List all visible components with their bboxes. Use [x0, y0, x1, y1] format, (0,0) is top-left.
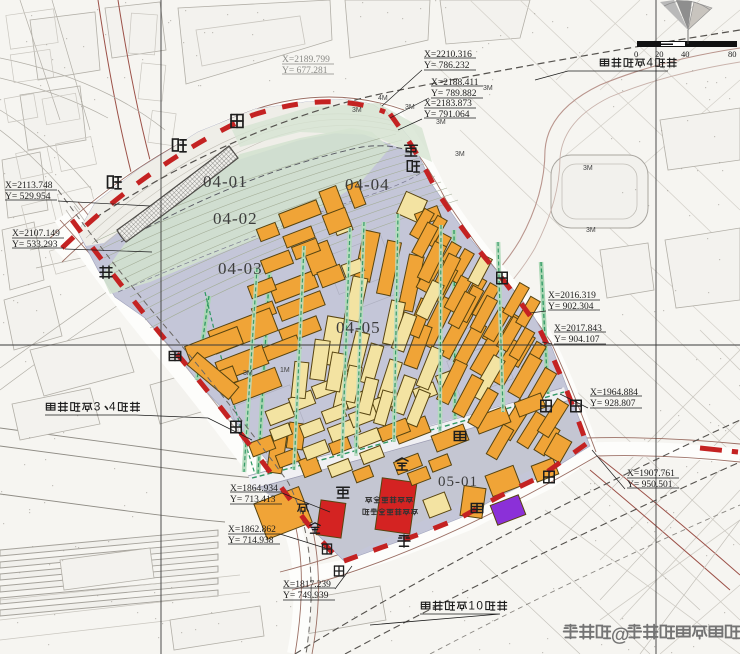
svg-text:@: @ [611, 625, 630, 646]
svg-text:04-03: 04-03 [218, 259, 263, 278]
svg-text:X=2183.873: X=2183.873 [424, 99, 472, 109]
svg-text:3M: 3M [483, 85, 493, 92]
svg-text:X=2189.799: X=2189.799 [282, 55, 330, 65]
svg-text:80: 80 [728, 49, 737, 59]
svg-text:3M: 3M [586, 227, 596, 234]
svg-text:X=2016.319: X=2016.319 [548, 291, 596, 301]
svg-text:Y= 789.882: Y= 789.882 [431, 89, 477, 99]
svg-text:Y= 749.939: Y= 749.939 [283, 591, 329, 601]
svg-text:3M: 3M [243, 370, 253, 377]
svg-text:04-05: 04-05 [336, 318, 381, 337]
svg-text:Y= 677.281: Y= 677.281 [282, 66, 328, 76]
svg-text:4: 4 [647, 56, 654, 69]
svg-text:X=2188.411: X=2188.411 [431, 78, 479, 88]
svg-text:X=1862.862: X=1862.862 [228, 525, 276, 535]
svg-text:4M: 4M [378, 95, 388, 102]
svg-text:3M: 3M [436, 119, 446, 126]
svg-text:4: 4 [109, 400, 116, 414]
svg-text:3: 3 [94, 400, 101, 414]
svg-text:0: 0 [634, 49, 638, 59]
svg-text:Y= 533.293: Y= 533.293 [12, 240, 58, 250]
svg-text:40: 40 [681, 49, 690, 59]
svg-text:Y= 950.501: Y= 950.501 [627, 480, 673, 490]
svg-text:X=2017.843: X=2017.843 [554, 324, 602, 334]
svg-text:1M: 1M [280, 367, 290, 374]
svg-text:1: 1 [468, 599, 475, 613]
svg-text:Y= 904.107: Y= 904.107 [554, 335, 600, 345]
svg-text:X=1907.761: X=1907.761 [627, 469, 675, 479]
svg-text:Y= 786.232: Y= 786.232 [424, 61, 470, 71]
svg-text:3M: 3M [583, 165, 593, 172]
svg-text:04-04: 04-04 [345, 175, 390, 194]
svg-text:Y= 529.954: Y= 529.954 [5, 192, 51, 202]
svg-text:X=2107.149: X=2107.149 [12, 229, 60, 239]
svg-text:04-02: 04-02 [213, 209, 258, 228]
svg-text:3M: 3M [405, 104, 415, 111]
svg-text:3M: 3M [352, 107, 362, 114]
svg-text:Y= 902.304: Y= 902.304 [548, 302, 594, 312]
svg-text:3M: 3M [455, 151, 465, 158]
svg-text:X=1964.884: X=1964.884 [590, 388, 638, 398]
svg-text:20: 20 [655, 49, 664, 59]
svg-text:Y= 928.807: Y= 928.807 [590, 399, 636, 409]
svg-text:X=2113.748: X=2113.748 [5, 181, 53, 191]
svg-text:X=1864.934: X=1864.934 [230, 484, 278, 494]
svg-text:Y= 713.413: Y= 713.413 [230, 495, 276, 505]
svg-text:0: 0 [476, 599, 483, 613]
svg-text:X=1817.239: X=1817.239 [283, 580, 331, 590]
svg-text:Y= 714.938: Y= 714.938 [228, 536, 274, 546]
svg-text:04-01: 04-01 [203, 172, 248, 191]
svg-text:Y= 791.064: Y= 791.064 [424, 110, 470, 120]
svg-text:X=2210.316: X=2210.316 [424, 50, 472, 60]
svg-text:05-01: 05-01 [438, 474, 478, 490]
